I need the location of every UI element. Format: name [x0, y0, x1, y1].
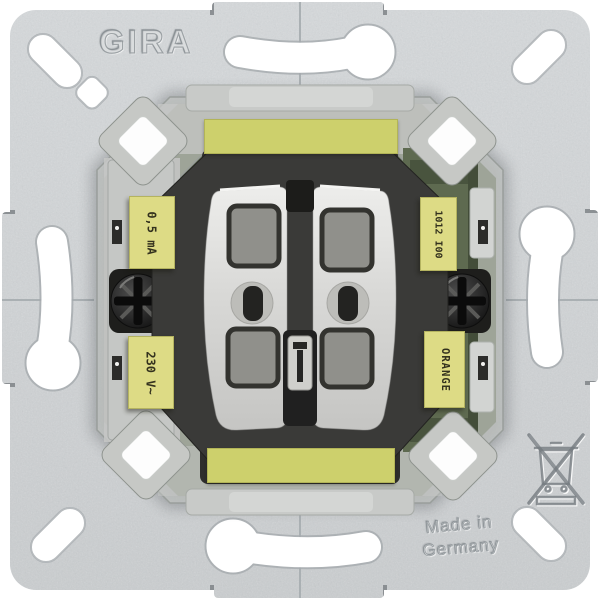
label-current-rating: 0,5 mA: [129, 196, 175, 269]
label-color-code-text: ORANGE: [439, 348, 451, 392]
top-band: [186, 85, 414, 111]
label-article-number: 1012 I00: [420, 197, 457, 271]
gira-switch-insert-photo: GIRA Made in Germany 0,5 mA 230 V~ 1012 …: [0, 0, 600, 600]
brand-emboss: GIRA: [99, 23, 229, 69]
label-color-code: ORANGE: [424, 331, 465, 408]
label-article-number-text: 1012 I00: [433, 210, 444, 258]
label-voltage-rating: 230 V~: [128, 336, 174, 409]
bottom-band: [186, 489, 414, 515]
lamp-carrier: [288, 336, 312, 390]
label-voltage-rating-text: 230 V~: [144, 351, 158, 394]
label-strip-top: [204, 119, 398, 154]
label-strip-bottom: [207, 448, 395, 483]
label-current-rating-text: 0,5 mA: [145, 211, 159, 254]
